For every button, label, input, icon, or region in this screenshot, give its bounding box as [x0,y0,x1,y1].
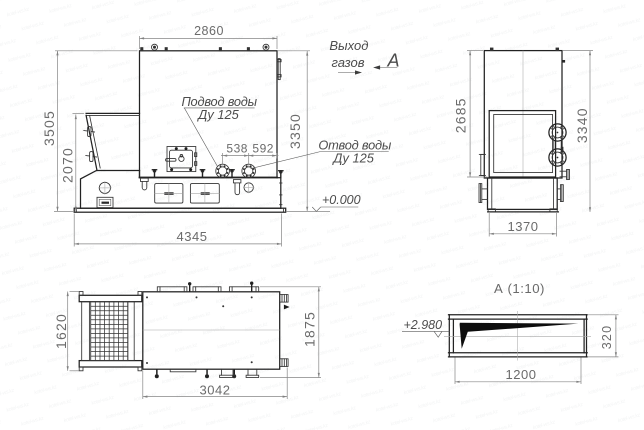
svg-text:1200: 1200 [506,367,537,382]
svg-text:Ду 125: Ду 125 [196,107,239,122]
svg-text:4345: 4345 [177,229,208,244]
svg-text:3350: 3350 [287,113,303,149]
svg-text:538: 538 [226,142,248,156]
svg-text:1620: 1620 [53,313,69,349]
svg-text:592: 592 [252,142,274,156]
svg-text:Ду 125: Ду 125 [331,151,374,166]
svg-text:+0.000: +0.000 [322,193,361,207]
svg-text:1875: 1875 [302,311,318,347]
svg-text:Выход: Выход [329,38,368,53]
svg-text:газов: газов [331,55,364,70]
svg-text:+2.980: +2.980 [404,318,443,332]
svg-text:320: 320 [600,325,614,349]
svg-text:1370: 1370 [508,219,539,234]
svg-text:3042: 3042 [200,383,231,398]
svg-text:2070: 2070 [60,147,76,183]
svg-text:А (1:10): А (1:10) [494,281,545,296]
svg-text:3505: 3505 [41,110,57,146]
svg-text:2860: 2860 [194,24,224,38]
svg-text:2685: 2685 [453,97,469,133]
svg-text:3340: 3340 [574,107,590,143]
